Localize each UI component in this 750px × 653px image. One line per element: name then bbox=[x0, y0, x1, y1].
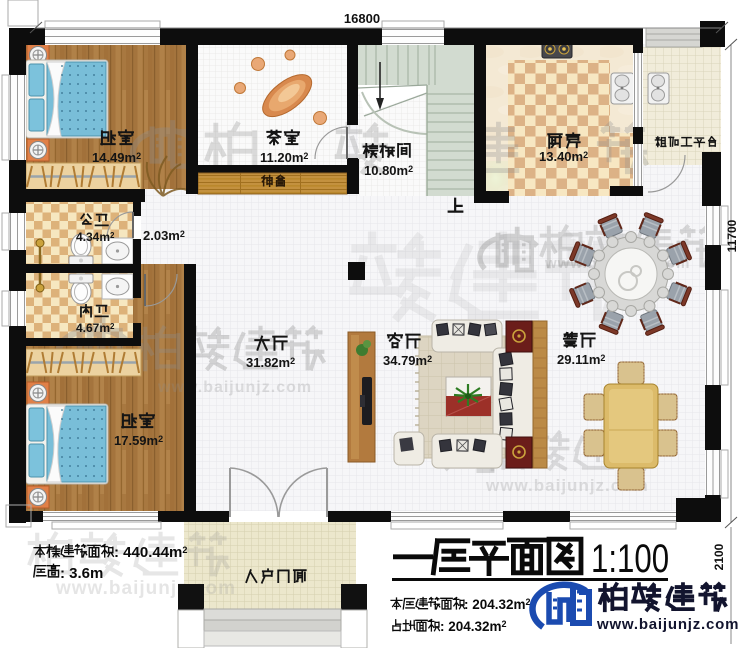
svg-text:: 204.32m2: : 204.32m2 bbox=[440, 619, 507, 634]
svg-text:29.11m2: 29.11m2 bbox=[557, 352, 605, 367]
svg-text:16800: 16800 bbox=[344, 11, 380, 26]
svg-text:2.03m2: 2.03m2 bbox=[143, 228, 185, 243]
svg-text:4.34m2: 4.34m2 bbox=[76, 230, 115, 244]
svg-text:: 3.6m: : 3.6m bbox=[60, 565, 103, 582]
svg-text:1:100: 1:100 bbox=[591, 536, 669, 581]
svg-text:34.79m2: 34.79m2 bbox=[383, 353, 432, 368]
svg-text:2100: 2100 bbox=[712, 543, 726, 570]
svg-text:14.49m2: 14.49m2 bbox=[92, 150, 141, 165]
svg-text:: 440.44m2: : 440.44m2 bbox=[114, 544, 187, 561]
svg-text:11700: 11700 bbox=[725, 219, 739, 252]
svg-text:: 204.32m2: : 204.32m2 bbox=[464, 597, 531, 612]
svg-text:www.baijunjz.com: www.baijunjz.com bbox=[596, 616, 739, 633]
svg-text:4.67m2: 4.67m2 bbox=[76, 321, 115, 335]
svg-text:www.baijunjz.com: www.baijunjz.com bbox=[157, 379, 312, 396]
svg-text:11.20m2: 11.20m2 bbox=[260, 150, 308, 165]
svg-text:13.40m2: 13.40m2 bbox=[539, 149, 588, 164]
svg-text:10.80m2: 10.80m2 bbox=[364, 163, 413, 178]
svg-text:17.59m2: 17.59m2 bbox=[114, 433, 163, 448]
svg-text:31.82m2: 31.82m2 bbox=[246, 355, 295, 370]
